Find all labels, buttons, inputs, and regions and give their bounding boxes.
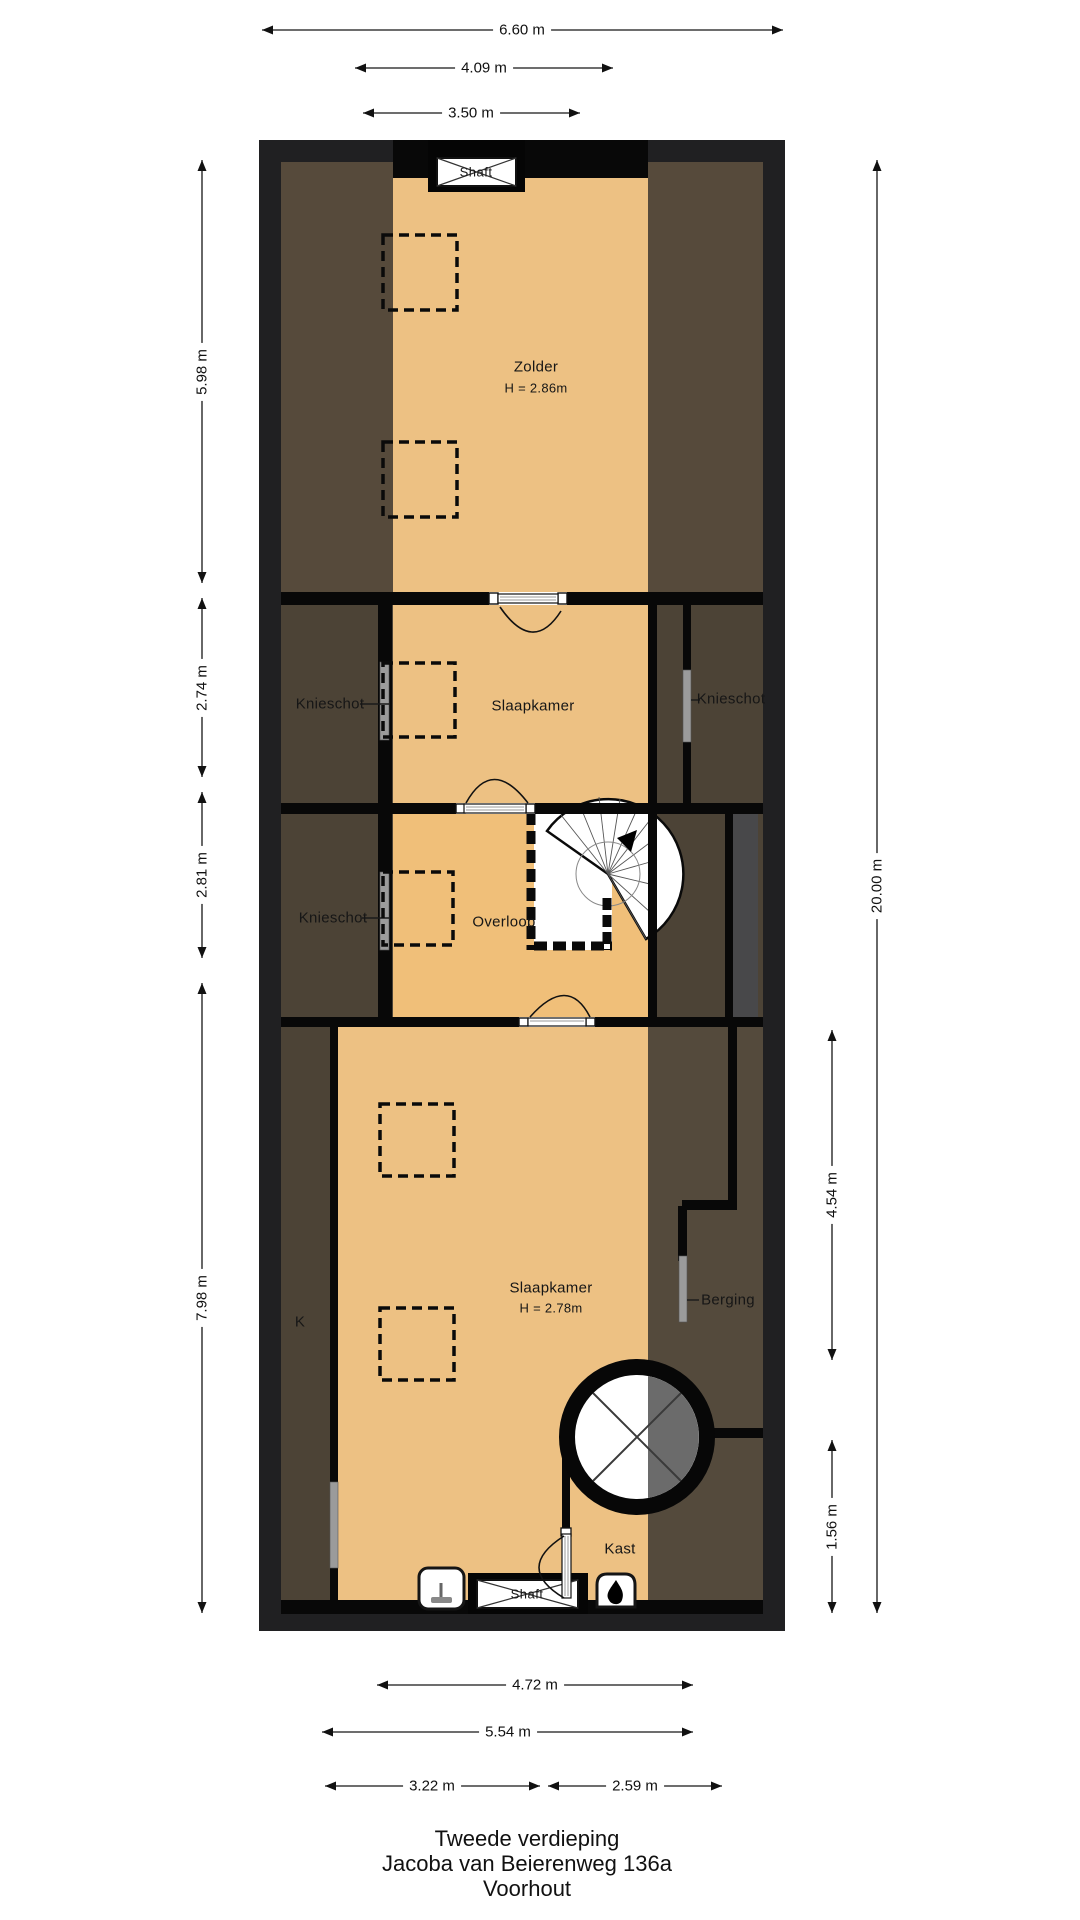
room-label-slaapkamer-onder: Slaapkamer [509,1280,592,1297]
room-label-zolder: Zolder [514,359,558,376]
room-label-knieschot-rechts: Knieschot [697,691,766,708]
shaft-top-label: Shaft [460,165,493,180]
room-label-overloop: Overloop [472,914,535,931]
floorplan-page: Zolder H = 2.86m Slaapkamer Knieschot Kn… [0,0,1080,1920]
room-label-k: K [295,1314,305,1331]
dimension-bottom-room: 4.72 m [506,1677,564,1694]
plan-title-address: Jacoba van Beierenweg 136a [382,1851,672,1877]
fireplace-icon [597,1574,635,1607]
dimension-bottom-right: 2.59 m [606,1778,664,1795]
dimension-bottom-inner: 5.54 m [479,1724,537,1741]
room-label-berging: Berging [701,1292,755,1309]
sink-icon [419,1568,464,1609]
floorplan-drawing [0,0,1080,1920]
dimension-height-total: 20.00 m [869,853,886,919]
dimension-width-inner: 4.09 m [455,60,513,77]
dimension-height-berging: 4.54 m [824,1166,841,1224]
round-void [567,1367,707,1507]
dimension-height-slaapkamer: 2.74 m [194,659,211,717]
plan-title-city: Voorhout [483,1876,571,1902]
ceiling-height-slaapkamer-onder: H = 2.78m [519,1301,582,1316]
dimension-width-room: 3.50 m [442,105,500,122]
plan-title-floor: Tweede verdieping [435,1826,620,1852]
dimension-height-overloop: 2.81 m [194,846,211,904]
room-label-knieschot-links-1: Knieschot [296,696,365,713]
room-label-kast: Kast [604,1541,635,1558]
shaft-bottom-label: Shaft [511,1587,544,1602]
dimension-bottom-left: 3.22 m [403,1778,461,1795]
dimension-width-total: 6.60 m [493,22,551,39]
dimension-height-kast: 1.56 m [824,1498,841,1556]
room-label-slaapkamer-boven: Slaapkamer [491,698,574,715]
dimension-height-zolder: 5.98 m [194,343,211,401]
ceiling-height-zolder: H = 2.86m [504,381,567,396]
dimension-height-slaapkamer2: 7.98 m [194,1269,211,1327]
room-label-knieschot-links-2: Knieschot [299,910,368,927]
spiral-staircase [531,797,683,950]
